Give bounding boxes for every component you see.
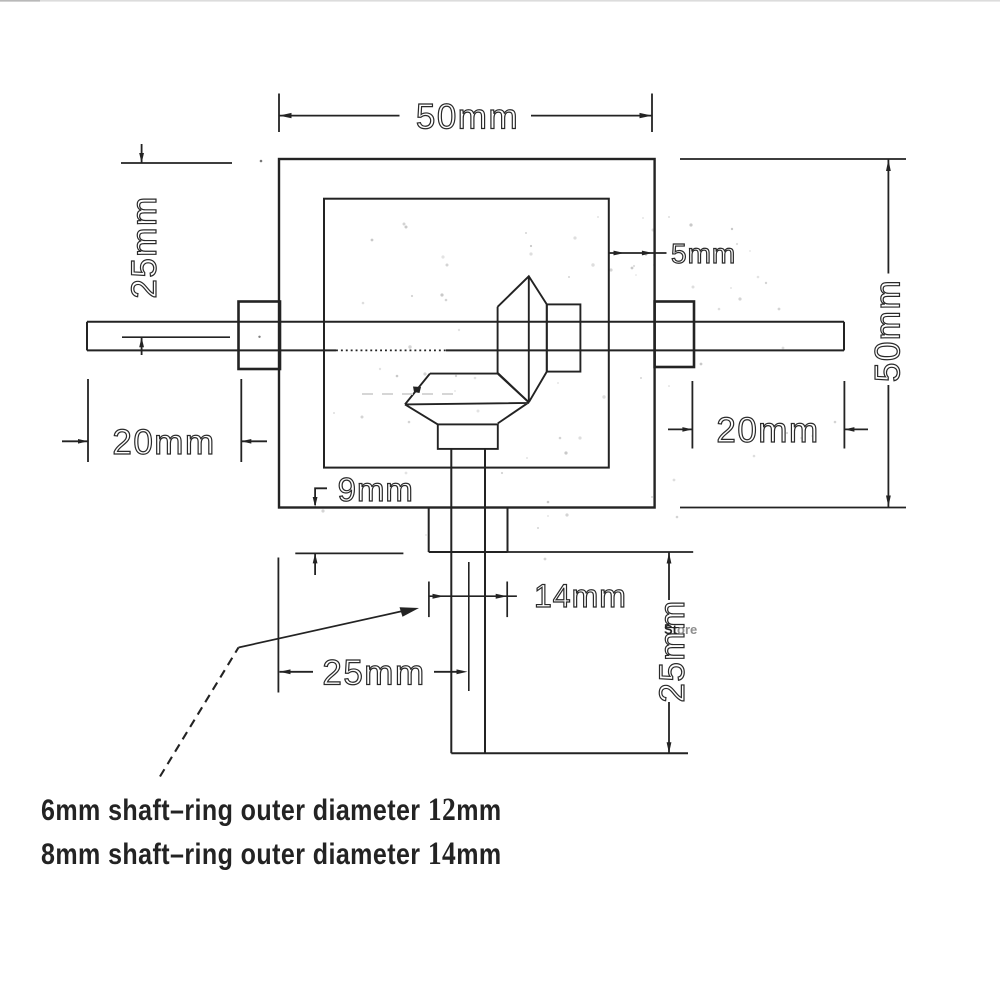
svg-text:14mm: 14mm [534,578,627,614]
svg-text:50mm: 50mm [868,279,907,382]
svg-text:8mm shaft–ring outer diameter: 8mm shaft–ring outer diameter 14mm [41,835,502,872]
svg-text:25mm: 25mm [322,654,425,693]
svg-text:50mm: 50mm [416,97,519,136]
svg-text:Store: Store [664,622,697,637]
svg-text:25mm: 25mm [125,195,164,298]
svg-text:25mm: 25mm [653,599,692,702]
svg-text:6mm shaft–ring outer diameter: 6mm shaft–ring outer diameter 12mm [41,791,502,828]
svg-text:20mm: 20mm [112,423,215,462]
svg-text:9mm: 9mm [338,471,414,508]
svg-text:20mm: 20mm [716,411,819,450]
svg-text:5mm: 5mm [671,238,736,269]
